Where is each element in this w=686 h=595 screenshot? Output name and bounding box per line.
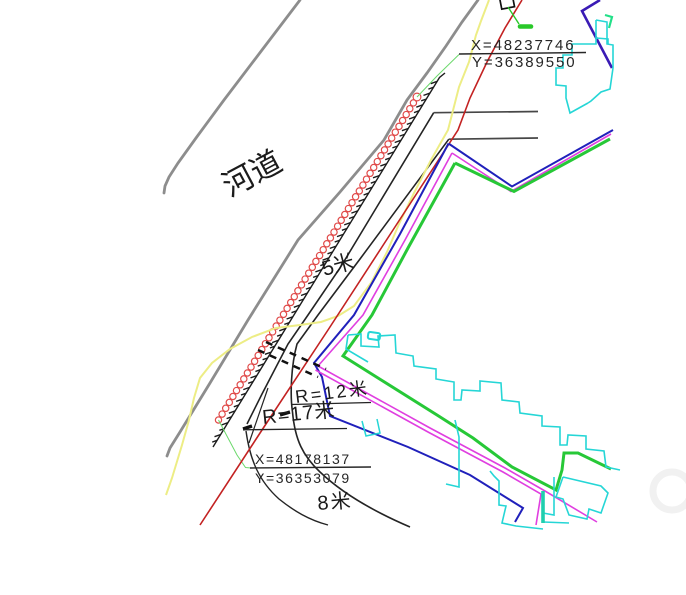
svg-text:8米: 8米 [316, 489, 353, 515]
svg-text:X=48237746: X=48237746 [471, 37, 576, 54]
svg-text:R=17米: R=17米 [261, 398, 336, 429]
svg-text:Y=36353079: Y=36353079 [255, 470, 351, 486]
svg-text:河道: 河道 [217, 144, 288, 204]
svg-text:Y=36389550: Y=36389550 [472, 54, 577, 71]
svg-text:5米: 5米 [319, 250, 357, 281]
svg-text:X=48178137: X=48178137 [255, 451, 351, 467]
